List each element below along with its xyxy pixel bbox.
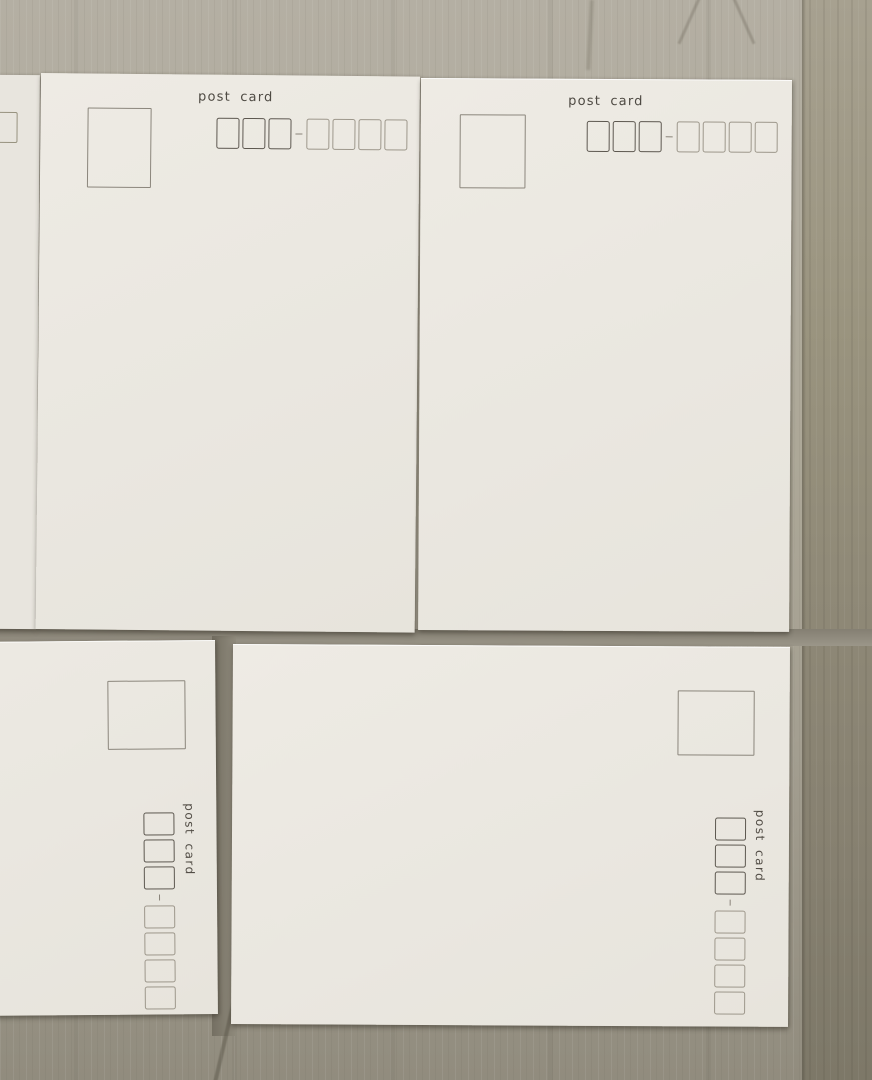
postal-code-dash [730,900,731,906]
postal-code-box [714,992,745,1015]
postal-code-box [332,119,355,150]
postal-code-box [714,911,745,934]
postal-code-boxes [143,812,176,1009]
stamp-box [107,680,186,750]
postal-code-box [144,866,175,889]
postal-code-dash [159,894,160,900]
postal-code-box [729,122,752,153]
postal-code-box [639,121,662,152]
postal-code-box [703,121,726,152]
postal-code-box [143,812,174,835]
postal-code-box [216,118,239,149]
postal-code-box [714,965,745,988]
postal-code-boxes [587,121,778,153]
postcard-bottom-left: post card [0,640,218,1018]
postcards-photo: post card post card post card post card [0,0,872,1080]
wood-grain-streak [586,0,594,70]
postal-code-box [144,839,175,862]
wood-dark-band [802,0,872,1080]
postal-code-box [384,119,407,150]
postal-code-box [306,119,329,150]
postal-code-box [0,112,18,143]
postal-code-box [715,818,746,841]
postal-code-box [755,122,778,153]
postcard-top-right: post card [418,78,792,632]
postal-code-boxes [216,118,407,151]
postal-code-box [715,845,746,868]
stamp-box [677,690,754,755]
postal-code-box [358,119,381,150]
postal-code-box [613,121,636,152]
stamp-box [459,114,525,188]
postal-code-box [144,932,175,955]
postal-code-box [714,938,745,961]
postal-code-dash [295,133,302,134]
postal-code-box [715,872,746,895]
postal-code-box [144,905,175,928]
postal-code-box [268,118,291,149]
postcard-bottom-right: post card [231,644,790,1027]
postal-code-box [242,118,265,149]
wood-grain-streak [678,0,702,44]
postal-code-dash [666,136,673,137]
stamp-box [87,107,152,188]
wood-grain-streak [732,0,756,44]
postcard-title: post card [182,803,197,876]
postal-code-box [677,121,700,152]
postcard-title: post card [753,810,767,883]
postcard-title: post card [171,89,301,105]
postcard-partial-left [0,73,40,629]
postcard-title: post card [541,94,671,110]
postal-code-box [587,121,610,152]
postal-code-box [145,959,176,982]
postcard-top-left: post card [36,73,420,633]
postal-code-boxes [714,818,746,1015]
postal-code-box [145,986,176,1009]
